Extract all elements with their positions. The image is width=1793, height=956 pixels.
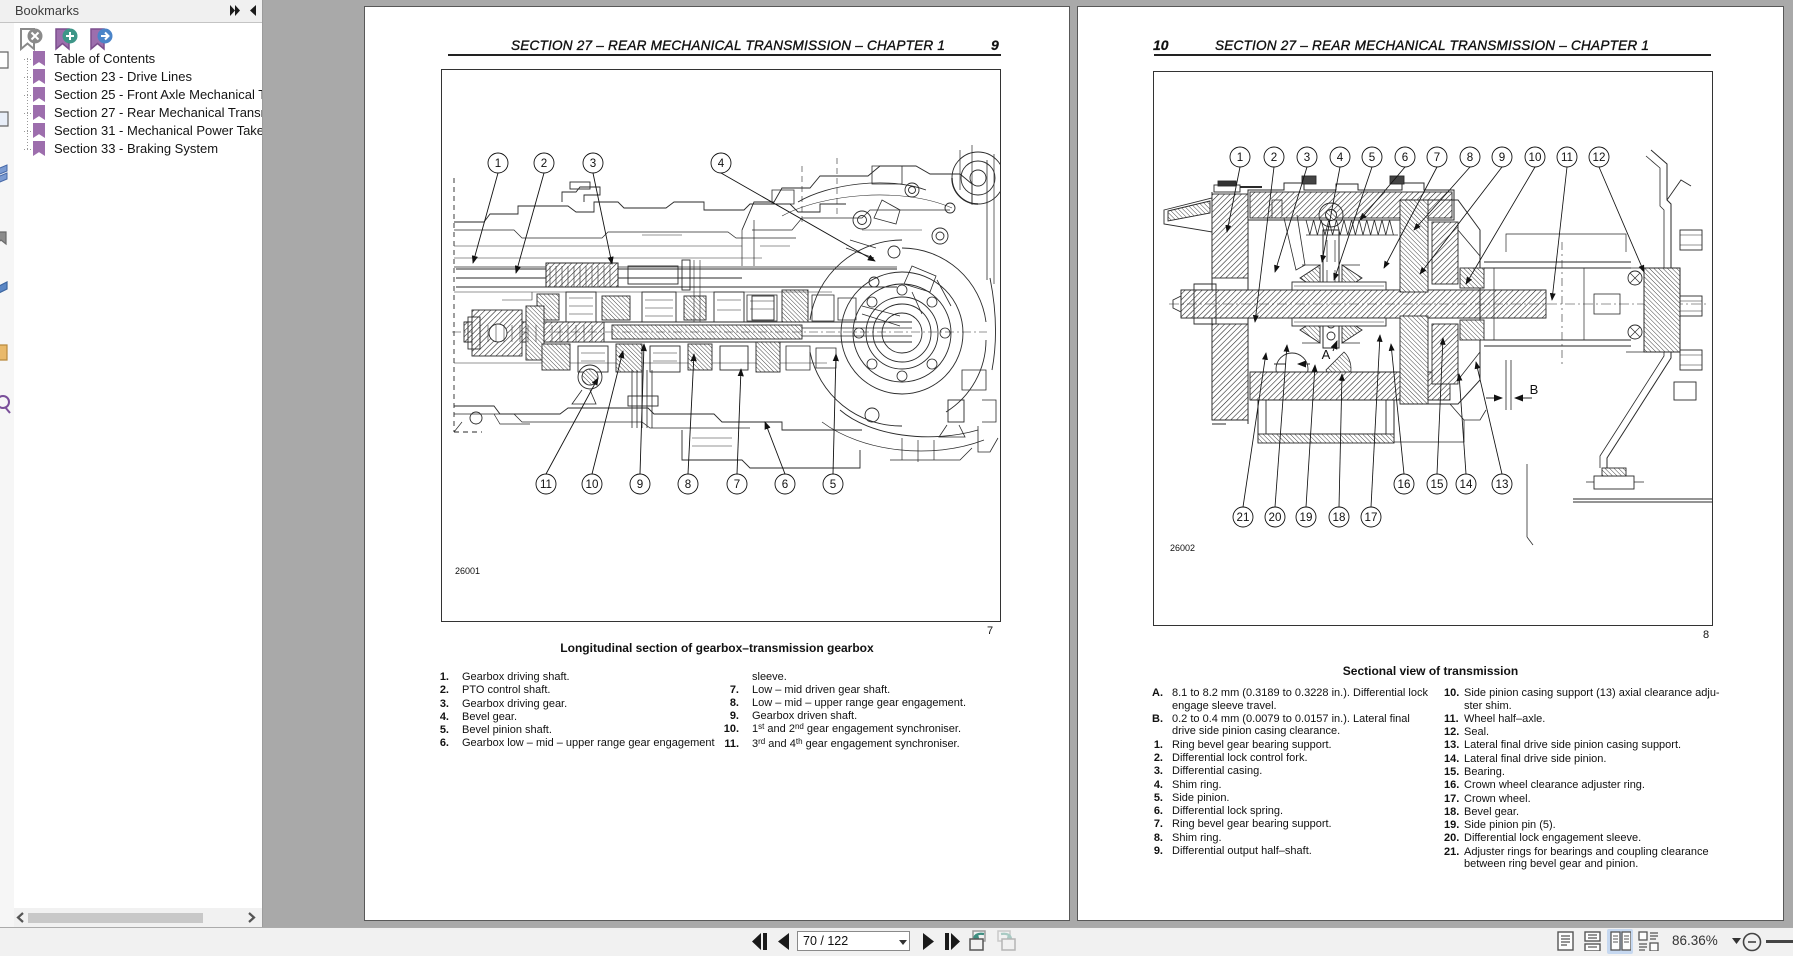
svg-text:3: 3 [1304, 151, 1310, 164]
svg-text:6: 6 [1402, 151, 1408, 164]
svg-text:13: 13 [1496, 478, 1509, 491]
svg-text:8: 8 [1467, 151, 1473, 164]
svg-text:B: B [1530, 382, 1539, 397]
svg-text:14: 14 [1460, 478, 1473, 491]
svg-text:1: 1 [1237, 151, 1243, 164]
svg-text:17: 17 [1365, 511, 1378, 524]
svg-text:4: 4 [718, 157, 725, 170]
svg-text:A: A [1322, 347, 1331, 362]
svg-text:26002: 26002 [1170, 543, 1195, 553]
svg-text:2: 2 [541, 157, 547, 170]
svg-text:15: 15 [1431, 478, 1444, 491]
svg-text:7: 7 [734, 478, 740, 491]
svg-text:10: 10 [586, 478, 599, 491]
svg-text:19: 19 [1300, 511, 1313, 524]
svg-text:9: 9 [1499, 151, 1505, 164]
svg-text:3: 3 [590, 157, 596, 170]
svg-text:16: 16 [1398, 478, 1411, 491]
svg-text:12: 12 [1593, 151, 1606, 164]
svg-text:8: 8 [685, 478, 691, 491]
svg-text:11: 11 [1561, 151, 1573, 164]
svg-text:7: 7 [1434, 151, 1440, 164]
svg-text:26001: 26001 [455, 566, 480, 576]
svg-text:1: 1 [495, 157, 501, 170]
svg-text:4: 4 [1337, 151, 1344, 164]
svg-text:11: 11 [540, 478, 552, 491]
svg-text:10: 10 [1529, 151, 1542, 164]
svg-text:9: 9 [637, 478, 643, 491]
svg-text:20: 20 [1269, 511, 1282, 524]
svg-text:2: 2 [1271, 151, 1277, 164]
svg-text:18: 18 [1333, 511, 1346, 524]
svg-text:5: 5 [1369, 151, 1375, 164]
svg-text:21: 21 [1237, 511, 1250, 524]
svg-text:5: 5 [830, 478, 836, 491]
svg-text:6: 6 [782, 478, 788, 491]
